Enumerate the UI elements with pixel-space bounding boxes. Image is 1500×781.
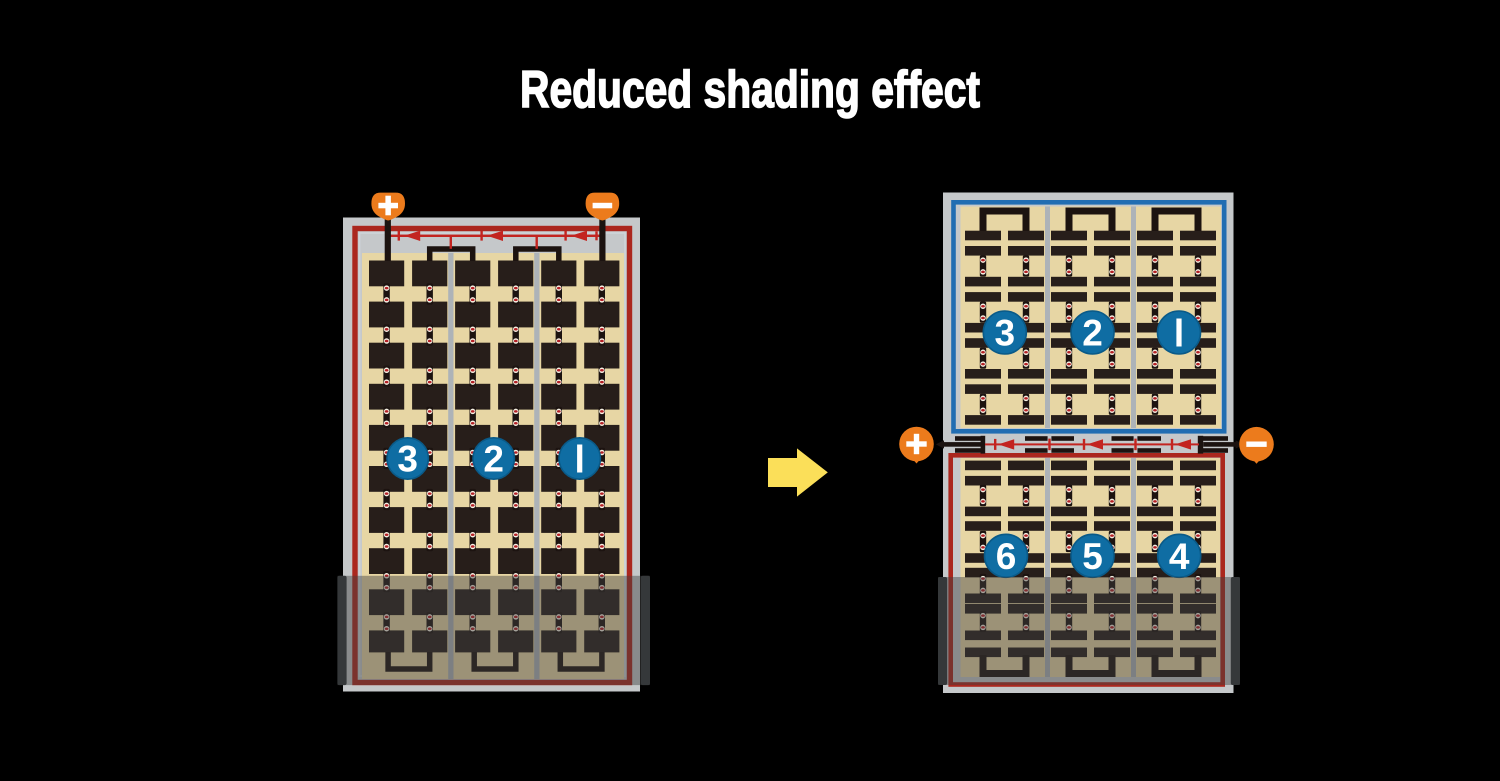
svg-text:2: 2 (483, 439, 504, 480)
svg-text:6: 6 (996, 536, 1017, 577)
svg-text:3: 3 (397, 439, 418, 480)
svg-text:2: 2 (1082, 313, 1103, 354)
svg-text:4: 4 (1169, 536, 1190, 577)
svg-text:5: 5 (1082, 536, 1103, 577)
svg-text:Reduced shading effect: Reduced shading effect (520, 61, 980, 119)
svg-text:3: 3 (995, 313, 1016, 354)
